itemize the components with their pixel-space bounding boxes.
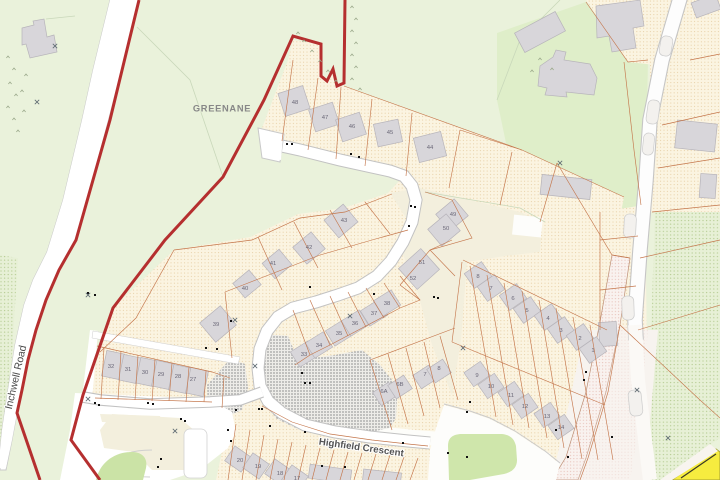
svg-text:2: 2 (578, 336, 581, 342)
svg-text:46: 46 (349, 124, 356, 130)
svg-text:48: 48 (292, 100, 299, 106)
svg-text:41: 41 (270, 261, 277, 267)
svg-text:17: 17 (294, 476, 301, 480)
svg-text:29: 29 (158, 372, 165, 378)
svg-text:44: 44 (427, 145, 434, 151)
svg-text:6B: 6B (396, 382, 403, 388)
svg-text:31: 31 (125, 367, 132, 373)
svg-text:18: 18 (277, 471, 284, 477)
svg-text:9: 9 (475, 373, 478, 379)
svg-text:13: 13 (544, 414, 551, 420)
svg-text:12: 12 (522, 404, 529, 410)
svg-text:43: 43 (341, 218, 348, 224)
svg-text:14: 14 (558, 425, 565, 431)
svg-text:49: 49 (450, 212, 457, 218)
svg-text:39: 39 (213, 322, 220, 328)
svg-text:47: 47 (322, 115, 329, 121)
svg-text:20: 20 (237, 458, 244, 464)
svg-text:GREENANE: GREENANE (193, 104, 251, 114)
svg-text:52: 52 (410, 276, 417, 282)
svg-text:32: 32 (108, 364, 115, 370)
svg-text:45: 45 (387, 130, 394, 136)
svg-text:11: 11 (508, 393, 514, 399)
svg-text:36: 36 (352, 321, 359, 327)
svg-text:50: 50 (443, 226, 450, 232)
svg-text:30: 30 (142, 370, 149, 376)
svg-text:27: 27 (190, 377, 197, 383)
svg-text:40: 40 (242, 286, 249, 292)
svg-text:1: 1 (591, 348, 594, 354)
svg-text:10: 10 (488, 384, 495, 390)
svg-text:42: 42 (306, 245, 313, 251)
svg-text:6A: 6A (380, 389, 387, 395)
svg-text:34: 34 (316, 343, 323, 349)
svg-text:38: 38 (384, 301, 391, 307)
svg-text:37: 37 (371, 311, 378, 317)
svg-text:7: 7 (489, 286, 492, 292)
svg-text:33: 33 (301, 352, 308, 358)
svg-text:7: 7 (423, 372, 426, 378)
svg-text:28: 28 (175, 374, 182, 380)
svg-text:51: 51 (419, 260, 426, 266)
svg-text:35: 35 (336, 331, 343, 337)
svg-text:19: 19 (255, 464, 262, 470)
